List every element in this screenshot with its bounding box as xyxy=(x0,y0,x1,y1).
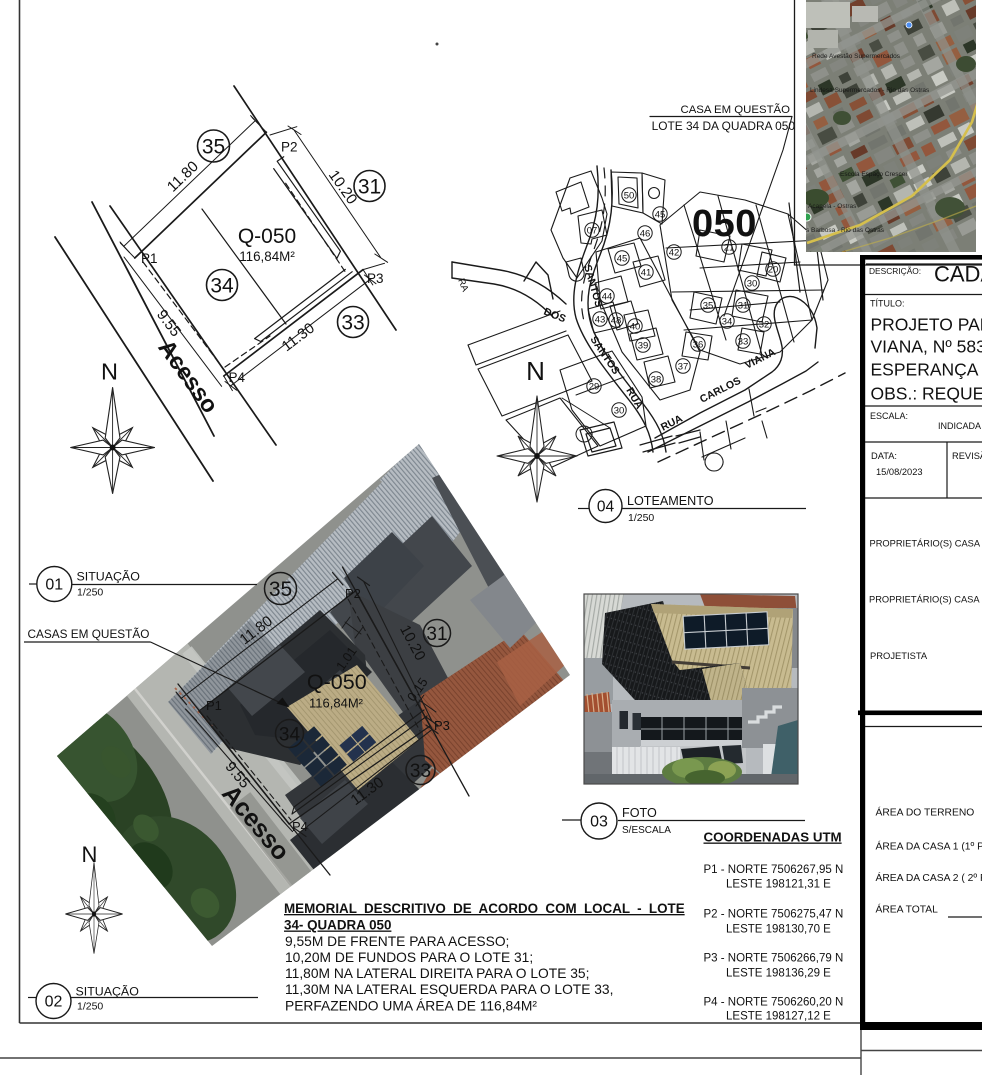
svg-text:35: 35 xyxy=(202,136,225,159)
svg-text:SITUAÇÃO: SITUAÇÃO xyxy=(77,570,141,584)
svg-text:10.20: 10.20 xyxy=(325,167,361,207)
svg-text:31: 31 xyxy=(358,176,381,199)
svg-text:Lindesa Supermercados - Rio da: Lindesa Supermercados - Rio das Ostras xyxy=(810,87,930,94)
svg-text:33: 33 xyxy=(738,337,749,348)
svg-text:03: 03 xyxy=(590,814,608,831)
svg-text:Rede Avestão Supermercados: Rede Avestão Supermercados xyxy=(812,53,901,60)
svg-text:S/ESCALA: S/ESCALA xyxy=(622,825,671,836)
svg-text:36: 36 xyxy=(693,340,704,351)
svg-text:116,84M²: 116,84M² xyxy=(309,696,364,711)
svg-text:34: 34 xyxy=(722,317,733,328)
svg-text:Acapela - Ostras: Acapela - Ostras xyxy=(808,203,857,210)
svg-text:LESTE 198136,29 E: LESTE 198136,29 E xyxy=(726,968,831,980)
svg-text:PROJETO PARA: PROJETO PARA xyxy=(871,315,982,335)
svg-text:SITUAÇÃO: SITUAÇÃO xyxy=(76,985,140,999)
svg-text:N: N xyxy=(82,842,98,867)
svg-text:04: 04 xyxy=(597,499,615,516)
svg-text:LESTE 198121,31 E: LESTE 198121,31 E xyxy=(726,879,831,891)
svg-text:Q-050: Q-050 xyxy=(307,670,367,694)
svg-text:CADASTRO: CADASTRO xyxy=(934,262,982,287)
svg-text:9,55M DE FRENTE PARA ACESSO;: 9,55M DE FRENTE PARA ACESSO; xyxy=(285,934,509,949)
svg-text:CARLOS: CARLOS xyxy=(698,375,743,406)
svg-text:38: 38 xyxy=(651,375,662,386)
svg-text:P1: P1 xyxy=(206,698,222,713)
svg-text:N: N xyxy=(526,356,545,386)
svg-text:42: 42 xyxy=(669,248,680,259)
svg-text:1/250: 1/250 xyxy=(77,587,103,599)
svg-text:CASAS EM QUESTÃO: CASAS EM QUESTÃO xyxy=(28,627,150,641)
svg-text:FOTO: FOTO xyxy=(622,806,657,820)
svg-text:34: 34 xyxy=(279,725,301,746)
svg-text:11,30M NA LATERAL ESQUERDA PAR: 11,30M NA LATERAL ESQUERDA PARA O LOTE 3… xyxy=(285,982,613,997)
svg-text:Escola Espaço Crescer: Escola Espaço Crescer xyxy=(840,171,908,178)
svg-text:116,84M²: 116,84M² xyxy=(239,249,295,264)
svg-text:ESPERANÇA -: ESPERANÇA - xyxy=(871,360,982,380)
svg-text:46: 46 xyxy=(640,229,651,240)
svg-text:35: 35 xyxy=(269,578,292,601)
svg-text:11.30: 11.30 xyxy=(279,320,318,356)
svg-text:35: 35 xyxy=(703,301,714,312)
svg-text:37: 37 xyxy=(678,362,689,373)
svg-text:LOTEAMENTO: LOTEAMENTO xyxy=(627,494,714,508)
svg-text:PERFAZENDO UMA ÁREA DE 116,84M: PERFAZENDO UMA ÁREA DE 116,84M² xyxy=(285,997,537,1013)
svg-text:ESCALA:: ESCALA: xyxy=(870,411,908,421)
svg-text:PROPRIETÁRIO(S) CASA 2: PROPRIETÁRIO(S) CASA 2 xyxy=(869,595,982,605)
svg-text:40: 40 xyxy=(630,322,641,333)
svg-text:45: 45 xyxy=(617,254,628,265)
svg-text:01: 01 xyxy=(45,577,63,594)
svg-text:P4: P4 xyxy=(292,819,308,834)
svg-text:33: 33 xyxy=(341,312,364,335)
svg-text:P1: P1 xyxy=(141,251,158,266)
svg-text:s Barbosa - Rio das Ostras: s Barbosa - Rio das Ostras xyxy=(806,227,885,234)
svg-text:DESCRIÇÃO:: DESCRIÇÃO: xyxy=(869,266,921,276)
svg-text:30: 30 xyxy=(747,279,758,290)
svg-text:44: 44 xyxy=(602,292,613,303)
svg-text:32: 32 xyxy=(759,320,770,331)
svg-text:MEMORIAL DESCRITIVO DE ACOR: MEMORIAL DESCRITIVO DE ACORDO COM LOCAL … xyxy=(284,901,685,916)
svg-text:45: 45 xyxy=(655,210,666,221)
svg-text:ÁREA DA CASA 2 ( 2º PAV.): ÁREA DA CASA 2 ( 2º PAV.) xyxy=(876,871,982,884)
svg-text:20: 20 xyxy=(768,265,779,276)
svg-text:DOS: DOS xyxy=(542,306,568,326)
svg-text:Q-050: Q-050 xyxy=(238,225,296,248)
svg-text:RA: RA xyxy=(455,277,470,294)
svg-text:ÁREA DO TERRENO: ÁREA DO TERRENO xyxy=(876,806,975,819)
svg-text:02: 02 xyxy=(45,994,63,1011)
svg-text:P3: P3 xyxy=(367,271,384,286)
svg-text:PROPRIETÁRIO(S) CASA 1: PROPRIETÁRIO(S) CASA 1 xyxy=(870,539,982,549)
svg-text:31: 31 xyxy=(738,301,749,312)
svg-text:DATA:: DATA: xyxy=(871,451,897,461)
svg-text:34- QUADRA 050: 34- QUADRA 050 xyxy=(284,918,391,933)
svg-text:INDICADA: INDICADA xyxy=(938,421,981,431)
svg-text:CASA EM QUESTÃO: CASA EM QUESTÃO xyxy=(680,103,790,116)
svg-text:P2: P2 xyxy=(281,140,298,155)
svg-text:REVISÃO: REVISÃO xyxy=(952,451,982,461)
svg-text:LOTE 34 DA QUADRA 050: LOTE 34 DA QUADRA 050 xyxy=(652,119,796,133)
svg-text:P1 - NORTE 7506267,95 N: P1 - NORTE 7506267,95 N xyxy=(704,864,844,876)
svg-text:33: 33 xyxy=(410,761,431,782)
svg-text:10,20M DE FUNDOS PARA O LOTE 3: 10,20M DE FUNDOS PARA O LOTE 31; xyxy=(285,950,533,965)
svg-text:PROJETISTA: PROJETISTA xyxy=(870,650,928,661)
svg-text:050: 050 xyxy=(692,203,757,245)
svg-text:ÁREA TOTAL: ÁREA TOTAL xyxy=(876,903,939,916)
svg-text:N: N xyxy=(101,359,118,385)
svg-text:P2 - NORTE 7506275,47 N: P2 - NORTE 7506275,47 N xyxy=(704,909,844,921)
svg-text:1/250: 1/250 xyxy=(628,512,654,524)
svg-text:1/250: 1/250 xyxy=(77,1001,103,1013)
svg-text:P2: P2 xyxy=(345,586,361,601)
svg-text:29: 29 xyxy=(589,382,600,393)
svg-text:11,80M NA LATERAL DIREITA PARA: 11,80M NA LATERAL DIREITA PARA O LOTE 35… xyxy=(285,966,589,981)
svg-text:OBS.: REQUERI: OBS.: REQUERI xyxy=(871,384,982,404)
svg-text:P3: P3 xyxy=(434,718,450,733)
svg-text:39: 39 xyxy=(638,341,649,352)
svg-text:31: 31 xyxy=(426,624,447,645)
svg-text:34: 34 xyxy=(210,275,234,298)
svg-text:VIANA, Nº 583: VIANA, Nº 583 xyxy=(871,337,982,357)
svg-text:50: 50 xyxy=(624,191,635,202)
svg-text:30: 30 xyxy=(614,406,625,417)
svg-text:LESTE 198130,70 E: LESTE 198130,70 E xyxy=(726,924,831,936)
svg-text:ÁREA DA CASA 1 (1º PAV.): ÁREA DA CASA 1 (1º PAV.) xyxy=(876,840,982,853)
svg-text:43: 43 xyxy=(595,315,606,326)
svg-text:P4 - NORTE 7506260,20 N: P4 - NORTE 7506260,20 N xyxy=(704,997,844,1009)
svg-text:TÍTULO:: TÍTULO: xyxy=(870,299,905,309)
svg-text:15/08/2023: 15/08/2023 xyxy=(876,467,923,477)
svg-text:P3 - NORTE 7506266,79 N: P3 - NORTE 7506266,79 N xyxy=(704,953,844,965)
svg-text:LESTE 198127,12 E: LESTE 198127,12 E xyxy=(726,1011,831,1023)
svg-text:9.55: 9.55 xyxy=(153,307,184,341)
svg-text:48: 48 xyxy=(611,316,622,327)
svg-text:RUA: RUA xyxy=(659,412,685,433)
svg-text:07: 07 xyxy=(587,226,598,237)
svg-text:P4: P4 xyxy=(229,370,246,385)
svg-text:41: 41 xyxy=(641,268,652,279)
svg-text:COORDENADAS UTM: COORDENADAS UTM xyxy=(704,830,842,845)
